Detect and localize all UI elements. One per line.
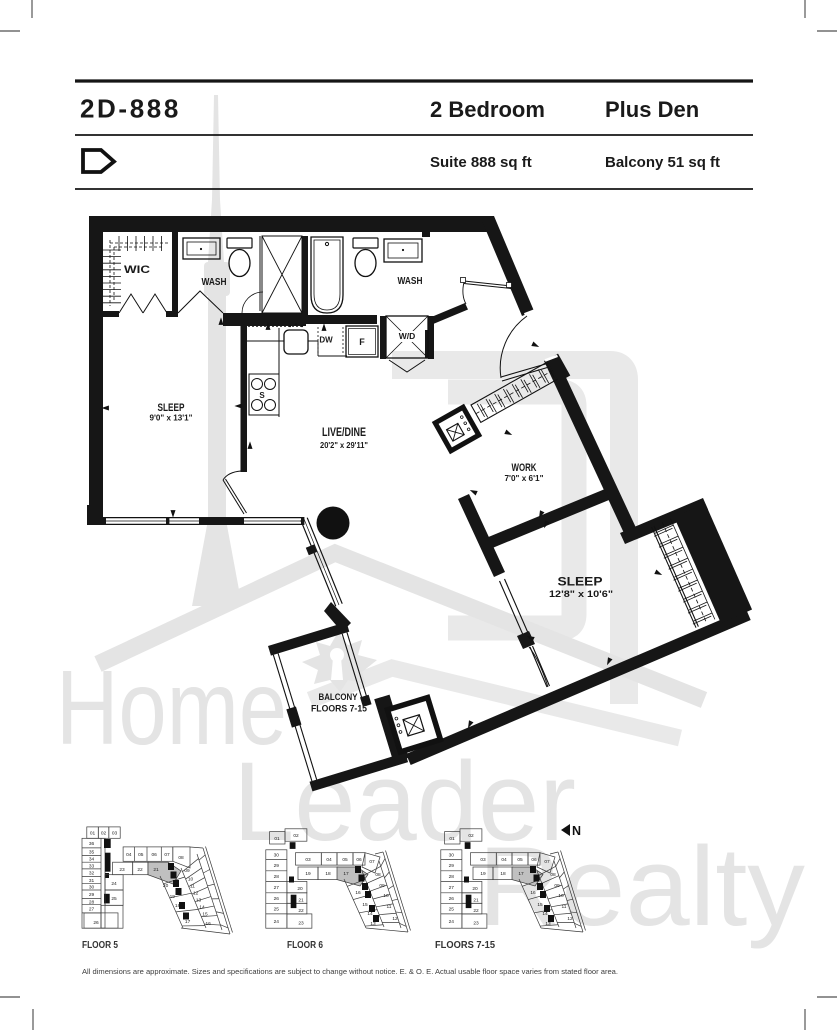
svg-text:06: 06 [152,852,158,858]
svg-text:12: 12 [392,916,398,922]
svg-text:36: 36 [89,841,95,847]
svg-text:30: 30 [274,852,280,858]
svg-text:23: 23 [473,921,479,927]
svg-text:LIVE/DINE: LIVE/DINE [322,427,366,439]
svg-text:34: 34 [89,857,95,863]
svg-text:WASH: WASH [202,277,227,288]
svg-text:26: 26 [93,920,99,926]
svg-text:9'0" x 13'1": 9'0" x 13'1" [150,413,193,423]
svg-text:21: 21 [298,898,304,904]
svg-text:27: 27 [89,906,95,912]
svg-text:29: 29 [89,892,95,898]
svg-text:DW: DW [319,336,333,345]
svg-text:14: 14 [199,905,205,911]
svg-text:WASH: WASH [398,276,423,287]
svg-text:11: 11 [562,904,567,910]
svg-text:26: 26 [449,896,455,902]
svg-text:15: 15 [362,902,368,908]
svg-text:03: 03 [305,857,311,863]
svg-text:24: 24 [111,881,117,887]
svg-text:F: F [359,337,365,347]
svg-text:22: 22 [473,908,479,914]
svg-text:19: 19 [305,871,311,877]
svg-text:12: 12 [193,890,199,896]
svg-text:20'2" x 29'11": 20'2" x 29'11" [320,440,368,450]
svg-text:12'8" x 10'6": 12'8" x 10'6" [549,589,613,599]
svg-text:07: 07 [544,859,550,865]
svg-text:11: 11 [387,904,392,910]
svg-text:27: 27 [274,885,280,891]
svg-text:20: 20 [472,886,478,892]
svg-text:2 Bedroom: 2 Bedroom [430,97,545,122]
svg-text:25: 25 [274,906,280,912]
svg-text:35: 35 [89,850,95,856]
svg-text:21: 21 [153,867,159,873]
svg-text:33: 33 [89,863,95,869]
svg-text:All dimensions are approximate: All dimensions are approximate. Sizes an… [82,967,618,976]
svg-text:19: 19 [480,871,486,877]
svg-text:26: 26 [274,896,280,902]
svg-text:05: 05 [138,852,144,858]
svg-text:09: 09 [184,868,190,874]
svg-text:08: 08 [178,855,184,861]
svg-text:SLEEP: SLEEP [558,575,603,589]
svg-text:04: 04 [326,857,332,863]
svg-text:2D-888: 2D-888 [80,94,181,124]
svg-text:19: 19 [170,894,176,900]
svg-text:24: 24 [449,919,455,925]
svg-text:02: 02 [293,833,299,839]
svg-text:07: 07 [164,852,170,858]
svg-text:27: 27 [449,885,455,891]
svg-text:08: 08 [375,872,381,878]
svg-text:29: 29 [274,863,280,869]
svg-text:N: N [572,824,581,838]
svg-text:17: 17 [518,871,524,877]
svg-text:12: 12 [567,916,573,922]
svg-text:09: 09 [379,883,385,889]
svg-text:01: 01 [449,836,455,842]
svg-text:11: 11 [190,884,195,890]
svg-text:10: 10 [558,893,564,899]
svg-text:Realty: Realty [478,824,805,949]
svg-text:S: S [259,391,265,400]
svg-text:Plus Den: Plus Den [605,97,699,122]
svg-text:18: 18 [325,871,331,877]
svg-text:BALCONY: BALCONY [319,692,359,703]
svg-text:07: 07 [369,859,375,865]
svg-text:16: 16 [355,890,361,896]
svg-text:08: 08 [550,872,556,878]
svg-text:29: 29 [449,863,455,869]
svg-text:20: 20 [163,883,169,889]
svg-text:05: 05 [342,857,348,863]
svg-text:09: 09 [554,883,560,889]
svg-text:FLOOR 5: FLOOR 5 [82,939,118,951]
svg-text:06: 06 [531,857,537,863]
svg-text:28: 28 [449,874,455,880]
svg-text:05: 05 [517,857,523,863]
svg-text:17: 17 [185,919,191,925]
svg-text:FLOORS 7-15: FLOORS 7-15 [435,939,495,951]
svg-text:04: 04 [501,857,507,863]
svg-text:FLOORS 7-15: FLOORS 7-15 [311,704,368,715]
svg-text:24: 24 [274,919,280,925]
svg-text:03: 03 [480,857,486,863]
svg-text:10: 10 [188,877,194,883]
svg-text:04: 04 [126,852,132,858]
svg-text:18: 18 [500,871,506,877]
svg-text:10: 10 [383,893,389,899]
svg-text:30: 30 [89,884,95,890]
svg-text:16: 16 [530,890,536,896]
svg-text:FLOOR 6: FLOOR 6 [287,939,323,951]
svg-text:28: 28 [274,874,280,880]
svg-text:32: 32 [89,871,95,877]
svg-text:23: 23 [119,867,125,873]
svg-text:01: 01 [274,836,280,842]
svg-text:31: 31 [89,878,95,884]
svg-text:W/D: W/D [399,331,416,341]
svg-text:13: 13 [196,898,202,904]
svg-text:Suite 888 sq ft: Suite 888 sq ft [430,154,532,171]
svg-text:15: 15 [202,911,208,917]
svg-text:15: 15 [537,902,543,908]
svg-text:03: 03 [112,830,118,836]
svg-text:25: 25 [449,906,455,912]
svg-text:01: 01 [90,830,96,836]
svg-text:WIC: WIC [124,264,150,276]
svg-text:16: 16 [206,921,212,927]
svg-text:23: 23 [298,921,304,927]
svg-text:17: 17 [343,871,349,877]
svg-text:22: 22 [298,908,304,914]
svg-text:02: 02 [101,830,107,836]
svg-text:Balcony 51 sq ft: Balcony 51 sq ft [605,154,720,171]
svg-text:25: 25 [111,896,117,902]
svg-text:7'0" x 6'1": 7'0" x 6'1" [505,473,544,483]
svg-text:02: 02 [468,833,474,839]
svg-text:20: 20 [297,886,303,892]
svg-text:22: 22 [137,867,143,873]
svg-text:06: 06 [356,857,362,863]
svg-text:28: 28 [89,899,95,905]
svg-text:30: 30 [449,852,455,858]
svg-text:21: 21 [473,898,479,904]
